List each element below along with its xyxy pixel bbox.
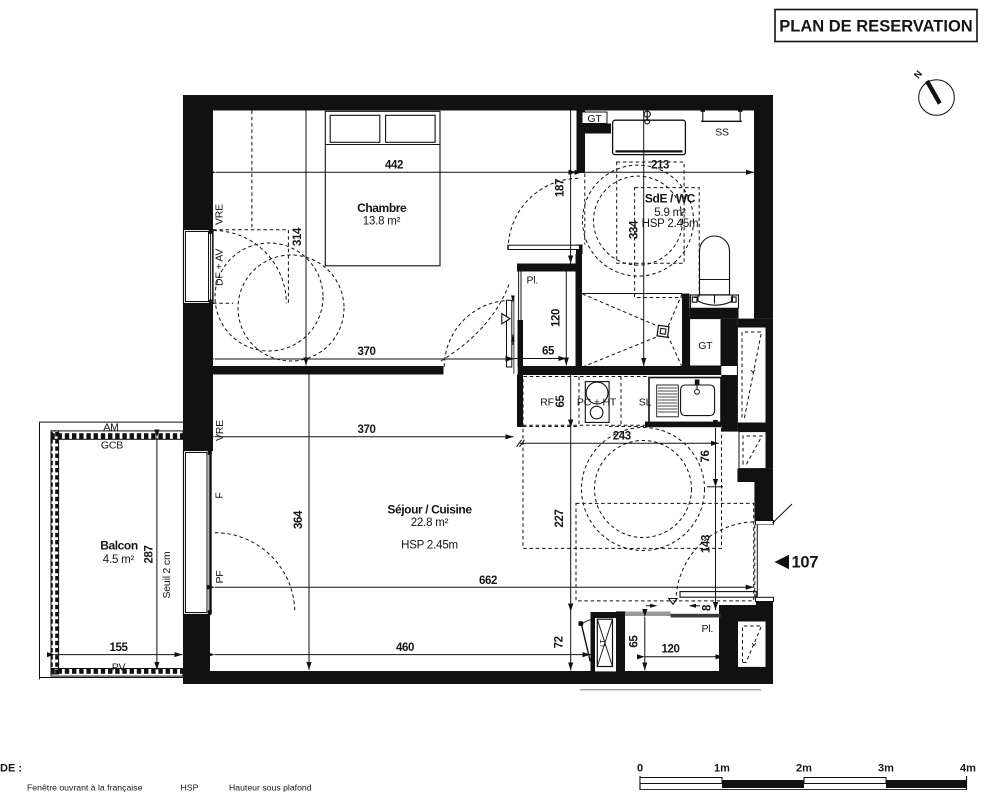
svg-text:243: 243 <box>613 431 631 443</box>
svg-text:120: 120 <box>551 309 563 327</box>
svg-text:370: 370 <box>358 346 376 358</box>
svg-text:370: 370 <box>358 424 376 436</box>
svg-text:460: 460 <box>396 642 414 654</box>
svg-text:VRE: VRE <box>214 204 226 225</box>
svg-text:HSP: HSP <box>181 783 199 793</box>
svg-text:Chambre: Chambre <box>357 201 407 215</box>
svg-text:Pl.: Pl. <box>527 275 539 287</box>
svg-text:143: 143 <box>701 535 713 553</box>
svg-text:22.8 m²: 22.8 m² <box>411 517 449 529</box>
svg-text:227: 227 <box>554 510 566 528</box>
svg-text:Pl.: Pl. <box>702 623 714 635</box>
svg-text:442: 442 <box>385 160 403 172</box>
svg-text:PV: PV <box>112 661 126 673</box>
svg-text:HSP 2.45m: HSP 2.45m <box>401 540 458 552</box>
svg-text:3m: 3m <box>878 763 894 775</box>
svg-text:65: 65 <box>542 346 555 358</box>
svg-text:8: 8 <box>702 604 714 611</box>
svg-text:1m: 1m <box>714 763 730 775</box>
svg-text:287: 287 <box>144 546 156 564</box>
svg-text:213: 213 <box>651 160 669 172</box>
svg-text:SL: SL <box>639 397 652 409</box>
svg-text:SS: SS <box>715 126 729 138</box>
svg-text:334: 334 <box>629 220 641 239</box>
svg-text:314: 314 <box>292 227 304 246</box>
svg-text:4m: 4m <box>960 763 976 775</box>
svg-text:120: 120 <box>662 644 680 656</box>
svg-text:Fenêtre ouvrant à la française: Fenêtre ouvrant à la française <box>27 783 143 793</box>
svg-text:2m: 2m <box>796 763 812 775</box>
svg-text:107: 107 <box>792 554 819 572</box>
svg-text:Séjour / Cuisine: Séjour / Cuisine <box>387 502 472 516</box>
svg-text:AM: AM <box>103 422 118 434</box>
svg-text:PLAN DE RESERVATION: PLAN DE RESERVATION <box>779 18 972 36</box>
svg-text:PC + HT: PC + HT <box>577 397 617 409</box>
svg-text:72: 72 <box>554 636 566 648</box>
svg-text:364: 364 <box>293 510 305 529</box>
svg-text:662: 662 <box>479 575 497 587</box>
svg-text:SdE / WC: SdE / WC <box>645 192 696 206</box>
svg-text:GT: GT <box>587 113 602 125</box>
svg-text:13.8 m²: 13.8 m² <box>363 216 401 228</box>
svg-text:76: 76 <box>700 451 712 463</box>
svg-text:GCB: GCB <box>101 440 123 452</box>
svg-text:0: 0 <box>637 763 643 775</box>
svg-text:HSP 2.45m: HSP 2.45m <box>642 218 699 230</box>
svg-text:65: 65 <box>555 395 567 408</box>
svg-text:155: 155 <box>110 642 129 654</box>
svg-text:DF + AV: DF + AV <box>214 249 226 286</box>
svg-text:187: 187 <box>555 179 567 197</box>
svg-text:F: F <box>213 492 225 498</box>
svg-text:Balcon: Balcon <box>100 539 138 553</box>
svg-text:4.5 m²: 4.5 m² <box>103 554 135 566</box>
svg-text:VRE: VRE <box>214 420 226 441</box>
svg-text:PF: PF <box>214 570 226 583</box>
svg-text:65: 65 <box>629 635 641 648</box>
svg-text:DE :: DE : <box>0 763 22 775</box>
svg-text:GT: GT <box>698 340 713 352</box>
svg-text:Hauteur sous plafond: Hauteur sous plafond <box>229 783 312 793</box>
svg-text:LT: LT <box>600 638 607 646</box>
svg-text:Seuil 2 cm: Seuil 2 cm <box>161 551 173 598</box>
svg-text:RF: RF <box>540 397 554 409</box>
